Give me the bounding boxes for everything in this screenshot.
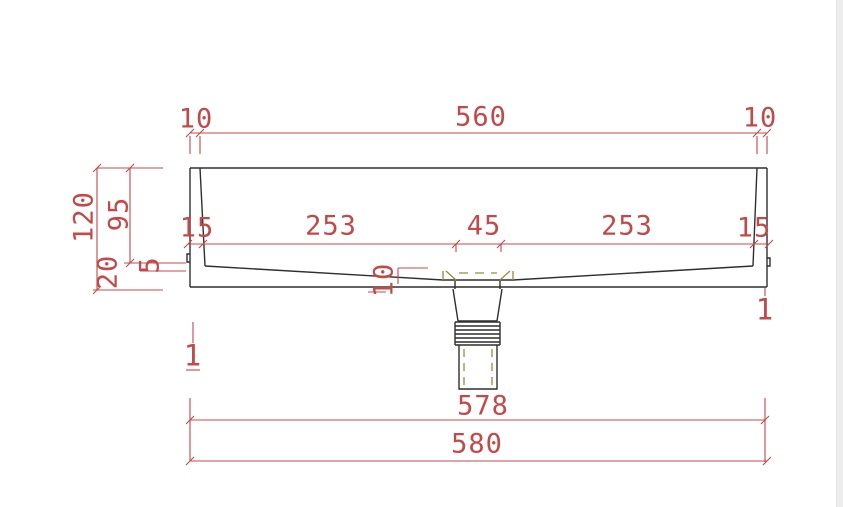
dim-label-top-width: 560 — [455, 104, 507, 131]
hidden-edges — [443, 271, 513, 387]
technical-drawing: 10 560 10 120 95 20 5 15 253 45 253 15 1… — [0, 0, 843, 507]
dim-label-right-mark: 1 — [756, 296, 774, 325]
dim-ext-floor-thickness — [398, 268, 428, 284]
window-edge-strip — [836, 0, 843, 507]
dim-ext-top — [190, 136, 767, 154]
dim-label-bottom-inner-width: 578 — [457, 393, 509, 420]
recess-left-chamfer — [446, 271, 456, 280]
dim-label-chain-left-wall: 15 — [180, 215, 215, 242]
dim-ext-chain-drain — [456, 244, 501, 252]
drain-flange — [453, 289, 502, 321]
drain-threads — [455, 322, 500, 345]
dim-label-chain-drain-width: 45 — [467, 213, 502, 240]
drain-pipe — [459, 345, 497, 389]
dim-label-floor-thickness: 10 — [371, 263, 398, 298]
dim-label-step: 5 — [137, 256, 164, 273]
drain-outline — [453, 289, 502, 389]
dimension-lines — [93, 129, 773, 465]
dim-label-bottom-outer-width: 580 — [451, 431, 503, 458]
dim-label-chain-right-span: 253 — [601, 213, 653, 240]
dim-label-left-mark: 1 — [184, 342, 202, 371]
dim-label-total-height: 120 — [71, 191, 98, 243]
dim-label-top-left-offset: 10 — [179, 106, 214, 133]
recess-right-chamfer — [500, 271, 510, 280]
dim-label-chain-left-span: 253 — [305, 213, 357, 240]
dim-label-top-right-offset: 10 — [743, 105, 778, 132]
dim-label-base-height: 20 — [95, 255, 122, 290]
drain-opening-sides — [455, 281, 500, 289]
drawing-canvas — [0, 0, 843, 507]
dim-label-basin-depth: 95 — [106, 197, 133, 232]
dim-label-chain-right-wall: 15 — [737, 215, 772, 242]
